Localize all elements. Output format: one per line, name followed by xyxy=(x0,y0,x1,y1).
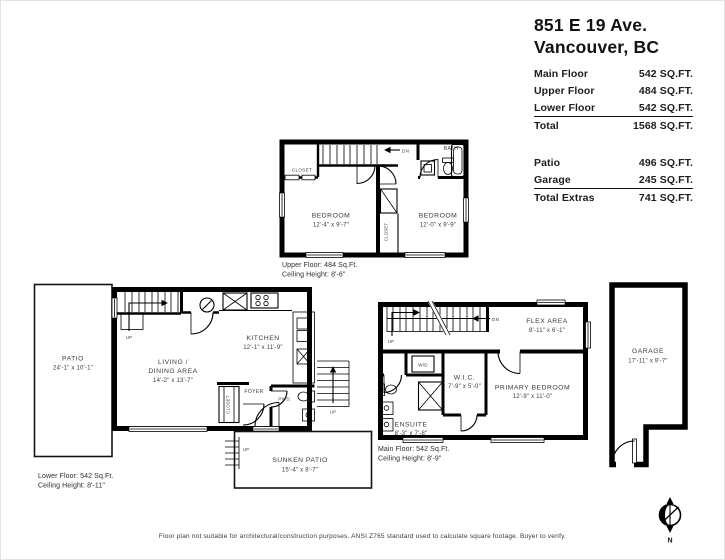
lower-floor-caption-ceiling: Ceiling Height: 8'-11" xyxy=(38,483,105,490)
sunken-patio-dims: 15'-4" x 8'-7" xyxy=(282,468,318,474)
living-dining-dims: 14'-2" x 13'-7" xyxy=(153,378,193,384)
main-stairs-dn-label: DN xyxy=(492,317,499,322)
living-dining-label-2: DINING AREA xyxy=(148,368,197,375)
washer-dryer-label: W/D xyxy=(418,363,428,368)
wic-label: W.I.C. xyxy=(454,375,476,382)
kitchen-label: KITCHEN xyxy=(246,335,279,342)
wic-dims: 7'-9" x 5'-0" xyxy=(448,384,481,390)
upper-bedroom-right-dims: 12'-0" x 9'-9" xyxy=(420,223,456,229)
lower-closet-vertical-label: CLOSET xyxy=(226,395,231,414)
lower-foyer-label: FOYER xyxy=(244,389,263,395)
living-dining-label-1: LIVING / xyxy=(158,359,188,366)
primary-bedroom-dims: 12'-9" x 11'-0" xyxy=(513,394,552,400)
upper-bedroom-left-label: BEDROOM xyxy=(312,213,351,220)
patio-label: PATIO xyxy=(62,356,84,363)
upper-bedroom-right-label: BEDROOM xyxy=(419,213,458,220)
lower-powder-label: PWD. xyxy=(278,397,291,402)
disclaimer-text: Floor plan not suitable for architectura… xyxy=(1,533,724,540)
floor-plan-page: 851 E 19 Ave. Vancouver, BC Main Floor 5… xyxy=(0,0,725,560)
kitchen-dims: 12'-1" x 11'-9" xyxy=(243,345,282,351)
lower-exterior-stairs-up-label: UP xyxy=(330,410,336,415)
main-floor-caption-area: Main Floor: 542 Sq.Ft. xyxy=(378,446,449,453)
upper-floor-caption-area: Upper Floor: 484 Sq.Ft. xyxy=(282,262,357,269)
ensuite-dims: 8'-3" x 7'-8" xyxy=(395,431,428,437)
lower-floor-caption-area: Lower Floor: 542 Sq.Ft. xyxy=(38,473,113,480)
ensuite-label: ENSUITE xyxy=(395,422,428,429)
upper-stairs-dn-label: DN xyxy=(402,148,409,153)
primary-bedroom-label: PRIMARY BEDROOM xyxy=(495,385,570,392)
sunken-patio-stairs-up-label: UP xyxy=(243,447,249,452)
upper-closet-label: CLOSET xyxy=(292,168,312,173)
upper-closet-vertical-label: CLOSET xyxy=(384,223,389,242)
upper-bath-label: BATH xyxy=(444,146,459,152)
sunken-patio-label: SUNKEN PATIO xyxy=(272,457,328,464)
patio-dims: 24'-1" x 10'-1" xyxy=(53,366,93,372)
garage-label: GARAGE xyxy=(632,348,664,355)
floor-plan-drawing: DN CLOSET CLOSET xyxy=(1,1,725,560)
lower-stairs-up-label: UP xyxy=(126,335,132,340)
lower-floor-plan: UP CL xyxy=(35,285,372,490)
upper-floor-plan: DN CLOSET CLOSET xyxy=(280,142,469,279)
garage-plan: GARAGE 17'-11" x 9'-7" xyxy=(612,285,685,469)
upper-bedroom-left-dims: 12'-4" x 9'-7" xyxy=(313,223,349,229)
main-floor-plan: UP DN W/D xyxy=(378,300,591,463)
garage-dims: 17'-11" x 9'-7" xyxy=(628,359,667,365)
main-floor-caption-ceiling: Ceiling Height: 8'-9" xyxy=(378,456,442,463)
flex-area-dims: 8'-11" x 6'-1" xyxy=(529,328,565,334)
main-stairs-up-label: UP xyxy=(388,339,394,344)
upper-floor-caption-ceiling: Ceiling Height: 8'-6" xyxy=(282,272,346,279)
flex-area-label: FLEX AREA xyxy=(526,318,568,325)
